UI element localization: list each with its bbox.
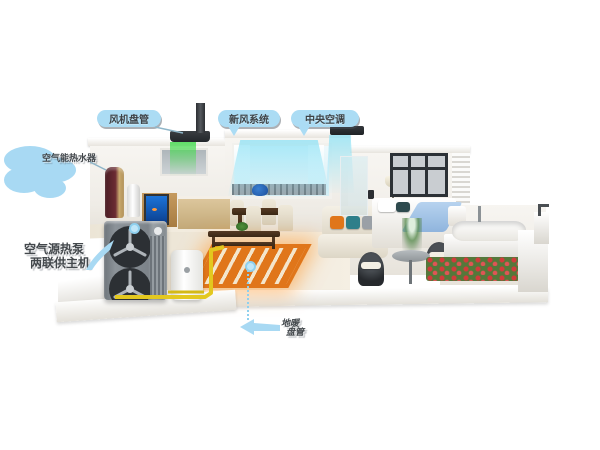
- callout-heat-pump-line2: 两联供主机: [24, 256, 90, 270]
- callout-heat-pump: 空气源热泵 两联供主机: [24, 242, 90, 270]
- callout-heat-pump-line1: 空气源热泵: [24, 242, 90, 256]
- callout-water-heater-leader: [0, 0, 600, 450]
- home-cutaway-scene: 风机盘管 新风系统 中央空调 空气能热水器 空气源热泵 两联供主机 地暖: [0, 0, 600, 450]
- callout-heat-pump-dot: [129, 223, 140, 234]
- callout-floor-heating-arrow: [240, 319, 280, 335]
- callout-floor-heating-line2: 盘管: [281, 328, 304, 337]
- callout-floor-heating-leader: [247, 270, 249, 320]
- callout-floor-heating: 地暖 盘管: [281, 319, 304, 337]
- callout-heat-pump-arrow: [84, 236, 120, 272]
